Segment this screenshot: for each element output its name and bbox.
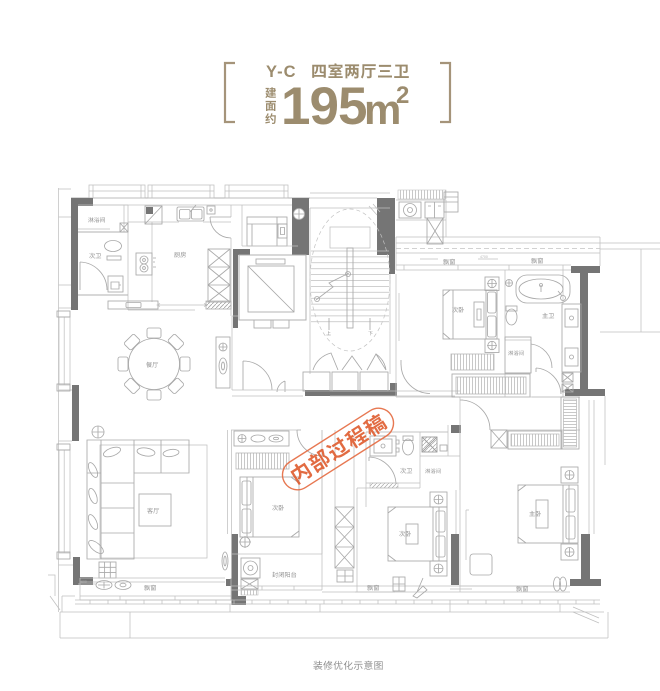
svg-text:4700: 4700 — [480, 255, 488, 259]
svg-text:600: 600 — [81, 580, 87, 584]
svg-text:2: 2 — [396, 82, 409, 109]
svg-text:195: 195 — [281, 77, 366, 136]
